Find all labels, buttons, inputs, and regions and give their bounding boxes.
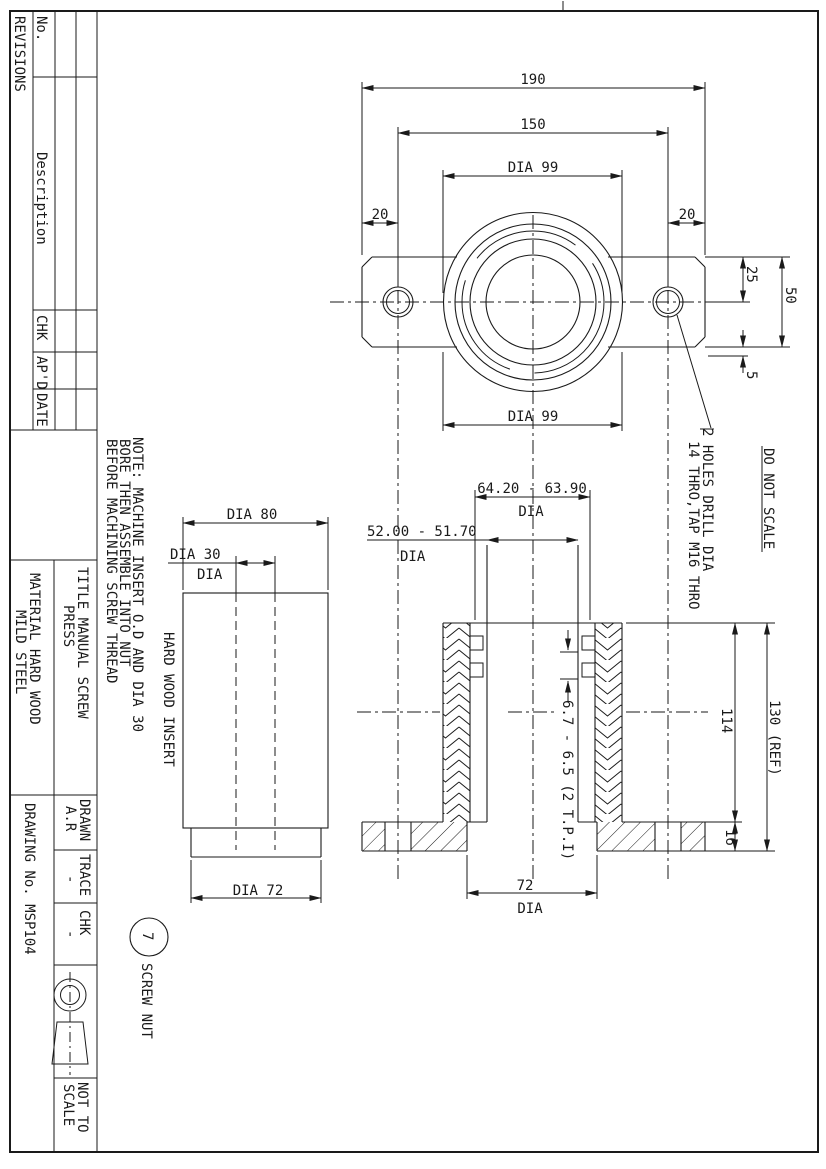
drawing-sheet: REVISIONS No. Description CHK AP'D DATE …: [0, 0, 826, 1169]
note-line3: BEFORE MACHINING SCREW THREAD: [103, 439, 119, 683]
hidden-bore-lines: [236, 593, 275, 850]
dim-20-right: 20: [679, 207, 696, 223]
section-view: 64.20 - 63.90 DIA 52.00 - 51.70 DIA 6.7 …: [357, 481, 782, 917]
dim-25: 25: [743, 266, 759, 283]
third-angle-projection-icon: [52, 972, 88, 1075]
dim-50: 50: [782, 287, 798, 304]
dim-16: 16: [722, 829, 738, 846]
dim-5: 5: [743, 371, 759, 379]
dim-dia99-top: DIA 99: [508, 160, 559, 176]
revisions-col-description: Description: [33, 152, 49, 245]
dim-190: 190: [520, 72, 545, 88]
dim-130-ref: 130 (REF): [766, 700, 782, 776]
flange-hatch: [362, 822, 385, 851]
revisions-col-date: DATE: [33, 393, 49, 427]
dim-dia99-bottom: DIA 99: [508, 409, 559, 425]
right-wall-hatch: [595, 623, 622, 822]
part-balloon: 7 SCREW NUT: [130, 918, 168, 1039]
balloon-number: 7: [139, 932, 155, 940]
chk-value: -: [62, 930, 78, 938]
trace-value: -: [62, 875, 78, 883]
thread-groove: [470, 636, 483, 650]
title-block: TITLE MANUAL SCREW PRESS MATERIAL HARD W…: [10, 560, 97, 1152]
dim-thread-od: 64.20 - 63.90: [477, 481, 587, 497]
dim-dia72: DIA 72: [233, 883, 284, 899]
dim-72: 72: [517, 878, 534, 894]
dim-dia80: DIA 80: [227, 507, 278, 523]
revisions-col-apd: AP'D: [33, 356, 49, 390]
revisions-title: REVISIONS: [11, 16, 27, 92]
drawn-value: A.R: [62, 806, 78, 832]
material-text-line2: MILD STEEL: [12, 610, 28, 694]
holes-note-line2: 14 THRO,TAP M16 THRO: [685, 441, 701, 610]
dim-72-dia: DIA: [517, 901, 543, 917]
dim-dia30-dia: DIA: [197, 567, 223, 583]
dim-114: 114: [718, 708, 734, 733]
engineering-drawing: REVISIONS No. Description CHK AP'D DATE …: [0, 0, 826, 1169]
balloon-label: SCREW NUT: [138, 963, 154, 1039]
title-text-line2: PRESS: [60, 605, 76, 647]
insert-label: HARD WOOD INSERT: [160, 632, 176, 767]
drawing-number: DRAWING No. MSP104: [21, 803, 37, 955]
dim-150: 150: [520, 117, 545, 133]
left-wall-hatch: [443, 623, 470, 822]
revisions-col-chk: CHK: [33, 315, 49, 341]
insert-view: DIA 80 DIA 30 DIA HARD WOOD INSERT DIA 7…: [160, 507, 328, 903]
not-to-scale-line2: SCALE: [60, 1084, 76, 1126]
dim-dia30: DIA 30: [170, 547, 221, 563]
dim-20-left: 20: [372, 207, 389, 223]
dim-bore: 52.00 - 51.70: [367, 524, 477, 540]
machining-note: NOTE: MACHINE INSERT O.D AND DIA 30 BORE…: [103, 437, 145, 732]
dim-thread-od-dia: DIA: [518, 504, 544, 520]
holes-leader-line: [677, 315, 714, 429]
dim-pitch: 6.7 - 6.5 (2 T.P.I): [559, 700, 575, 860]
do-not-scale-note: DO NOT SCALE: [760, 446, 776, 552]
revisions-col-no: No.: [33, 16, 49, 41]
dim-bore-dia: DIA: [400, 549, 426, 565]
